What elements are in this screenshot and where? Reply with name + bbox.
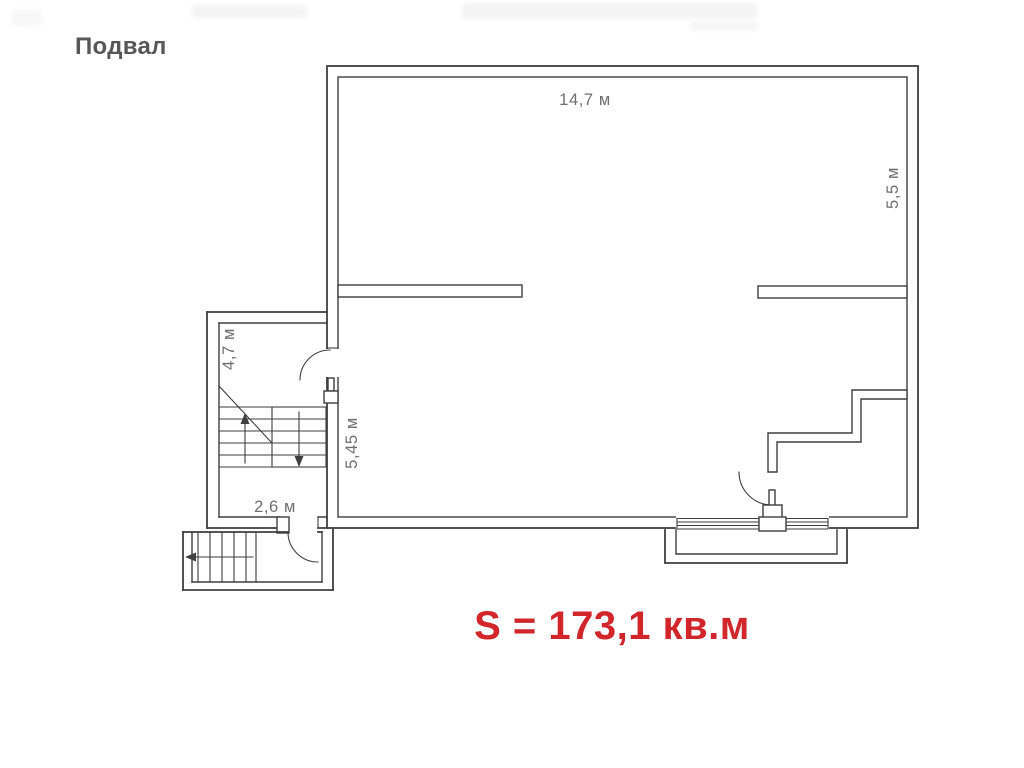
dimension-top-width: 14,7 м xyxy=(559,91,611,109)
left-partition-stub xyxy=(338,285,522,297)
annex-main-door xyxy=(300,348,340,403)
dimension-annex-height: 4,7 м xyxy=(220,328,238,370)
door-arc xyxy=(288,532,318,562)
door-jamb xyxy=(763,505,782,518)
exit-direction-arrow-icon xyxy=(185,553,253,562)
right-partition-stub xyxy=(758,286,907,298)
area-label: S = 173,1 кв.м xyxy=(447,604,777,649)
door-arc xyxy=(739,472,772,505)
door-jamb xyxy=(277,517,289,533)
door-threshold xyxy=(759,517,786,531)
dimension-annex-width: 2,6 м xyxy=(254,498,296,516)
internal-staircase xyxy=(219,386,326,467)
bottom-wall-window xyxy=(676,516,829,529)
stepped-partition xyxy=(768,390,907,472)
door-jamb xyxy=(324,391,338,403)
exit-staircase xyxy=(183,528,333,590)
stairs-down-arrow-icon xyxy=(295,412,304,467)
door-leaf xyxy=(328,378,334,391)
dimension-right-height: 5,5 м xyxy=(884,167,902,209)
floor-plan-drawing: 14,7 м 5,5 м 5,45 м 4,7 м 2,6 м xyxy=(0,0,1024,768)
floor-plan-page: Подвал xyxy=(0,0,1024,768)
dimension-inner-height: 5,45 м xyxy=(343,417,361,469)
entrance-porch xyxy=(665,530,847,563)
